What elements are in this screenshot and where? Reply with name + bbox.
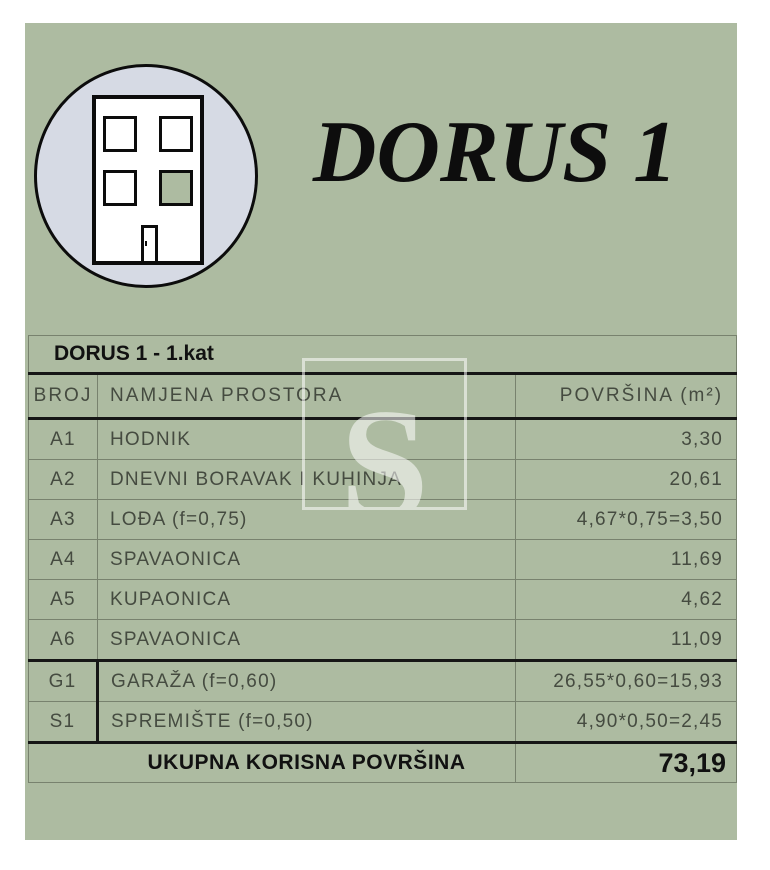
row-povrsina: 4,90*0,50=2,45 bbox=[516, 702, 737, 743]
row-namjena: GARAŽA (f=0,60) bbox=[98, 661, 516, 702]
door-handle-icon bbox=[145, 241, 147, 246]
row-broj: A2 bbox=[29, 460, 98, 500]
green-panel: DORUS 1 S DORUS 1 - 1.kat BROJ NAMJENA P… bbox=[25, 23, 737, 840]
table-row: G1 GARAŽA (f=0,60) 26,55*0,60=15,93 bbox=[29, 661, 737, 702]
row-broj: G1 bbox=[29, 661, 98, 702]
table-body: A1 HODNIK 3,30 A2 DNEVNI BORAVAK I KUHIN… bbox=[29, 419, 737, 743]
row-povrsina: 3,30 bbox=[516, 419, 737, 460]
row-broj: A5 bbox=[29, 580, 98, 620]
table-row: A3 LOĐA (f=0,75) 4,67*0,75=3,50 bbox=[29, 500, 737, 540]
row-povrsina: 11,69 bbox=[516, 540, 737, 580]
header-namjena: NAMJENA PROSTORA bbox=[98, 374, 516, 419]
window-icon bbox=[159, 116, 193, 152]
row-namjena: SPREMIŠTE (f=0,50) bbox=[98, 702, 516, 743]
row-povrsina: 20,61 bbox=[516, 460, 737, 500]
total-value: 73,19 bbox=[516, 743, 737, 783]
logo-circle bbox=[34, 64, 258, 288]
table-total-row: UKUPNA KORISNA POVRŠINA 73,19 bbox=[29, 743, 737, 783]
table-row: A4 SPAVAONICA 11,69 bbox=[29, 540, 737, 580]
green-window-icon bbox=[159, 170, 193, 206]
table-row: S1 SPREMIŠTE (f=0,50) 4,90*0,50=2,45 bbox=[29, 702, 737, 743]
row-namjena: DNEVNI BORAVAK I KUHINJA bbox=[98, 460, 516, 500]
row-namjena: SPAVAONICA bbox=[98, 620, 516, 661]
row-povrsina: 11,09 bbox=[516, 620, 737, 661]
header-povrsina: POVRŠINA (m²) bbox=[516, 374, 737, 419]
table-title-row: DORUS 1 - 1.kat bbox=[29, 336, 737, 374]
header-broj: BROJ bbox=[29, 374, 98, 419]
row-povrsina: 4,62 bbox=[516, 580, 737, 620]
row-broj: A3 bbox=[29, 500, 98, 540]
window-icon bbox=[103, 170, 137, 206]
table-header-row: BROJ NAMJENA PROSTORA POVRŠINA (m²) bbox=[29, 374, 737, 419]
row-namjena: HODNIK bbox=[98, 419, 516, 460]
building-icon bbox=[92, 95, 204, 265]
row-povrsina: 26,55*0,60=15,93 bbox=[516, 661, 737, 702]
door-icon bbox=[141, 225, 158, 261]
table-title: DORUS 1 - 1.kat bbox=[29, 336, 737, 374]
row-povrsina: 4,67*0,75=3,50 bbox=[516, 500, 737, 540]
row-broj: A6 bbox=[29, 620, 98, 661]
table-row: A1 HODNIK 3,30 bbox=[29, 419, 737, 460]
total-label: UKUPNA KORISNA POVRŠINA bbox=[29, 743, 516, 783]
table-row: A5 KUPAONICA 4,62 bbox=[29, 580, 737, 620]
page: { "brand": { "title": "DORUS 1" }, "logo… bbox=[0, 0, 770, 870]
row-namjena: SPAVAONICA bbox=[98, 540, 516, 580]
row-broj: A4 bbox=[29, 540, 98, 580]
table-row: A6 SPAVAONICA 11,09 bbox=[29, 620, 737, 661]
table-row: A2 DNEVNI BORAVAK I KUHINJA 20,61 bbox=[29, 460, 737, 500]
area-table: DORUS 1 - 1.kat BROJ NAMJENA PROSTORA PO… bbox=[28, 335, 737, 783]
row-broj: A1 bbox=[29, 419, 98, 460]
row-namjena: KUPAONICA bbox=[98, 580, 516, 620]
row-namjena: LOĐA (f=0,75) bbox=[98, 500, 516, 540]
row-broj: S1 bbox=[29, 702, 98, 743]
window-icon bbox=[103, 116, 137, 152]
brand-title: DORUS 1 bbox=[255, 109, 735, 197]
